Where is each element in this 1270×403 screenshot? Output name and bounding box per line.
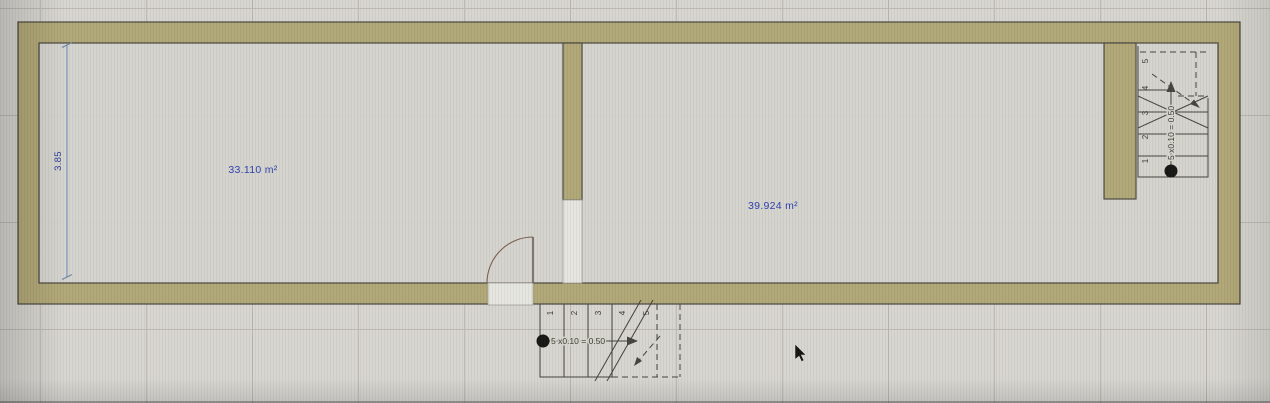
- room-area-label-right[interactable]: 39.924 m²: [748, 200, 798, 212]
- stair-top-right-formula: 5 x0.10 = 0.50: [1166, 106, 1176, 160]
- interior-wall-opening[interactable]: [563, 200, 582, 283]
- door-opening[interactable]: [488, 283, 533, 305]
- stair-start-dot: [1165, 165, 1178, 178]
- stair-step-number: 3: [594, 310, 603, 315]
- stair-bottom-formula: 5 x0.10 = 0.50: [551, 336, 605, 346]
- stair-step-number: 5: [642, 310, 651, 315]
- interior-wall[interactable]: [563, 43, 582, 200]
- stair-step-number: 4: [618, 310, 627, 315]
- stair-side-wall[interactable]: [1104, 43, 1136, 199]
- stair-step-number: 4: [1141, 85, 1150, 90]
- room-area-label-left[interactable]: 33.110 m²: [228, 164, 277, 176]
- stair-step-number: 1: [1141, 158, 1150, 163]
- room-left[interactable]: [39, 43, 563, 283]
- stair-step-number: 3: [1141, 110, 1150, 115]
- stair-step-number: 1: [546, 310, 555, 315]
- stair-step-number: 2: [570, 310, 579, 315]
- stair-step-number: 2: [1141, 134, 1150, 139]
- stair-step-number: 5: [1141, 58, 1150, 63]
- stair-start-dot: [537, 335, 550, 348]
- dimension-label[interactable]: 3.85: [53, 151, 64, 171]
- drawing-canvas[interactable]: 3.85 33.110 m² 39.924 m² 5 x0.10 = 0.50 …: [0, 0, 1270, 403]
